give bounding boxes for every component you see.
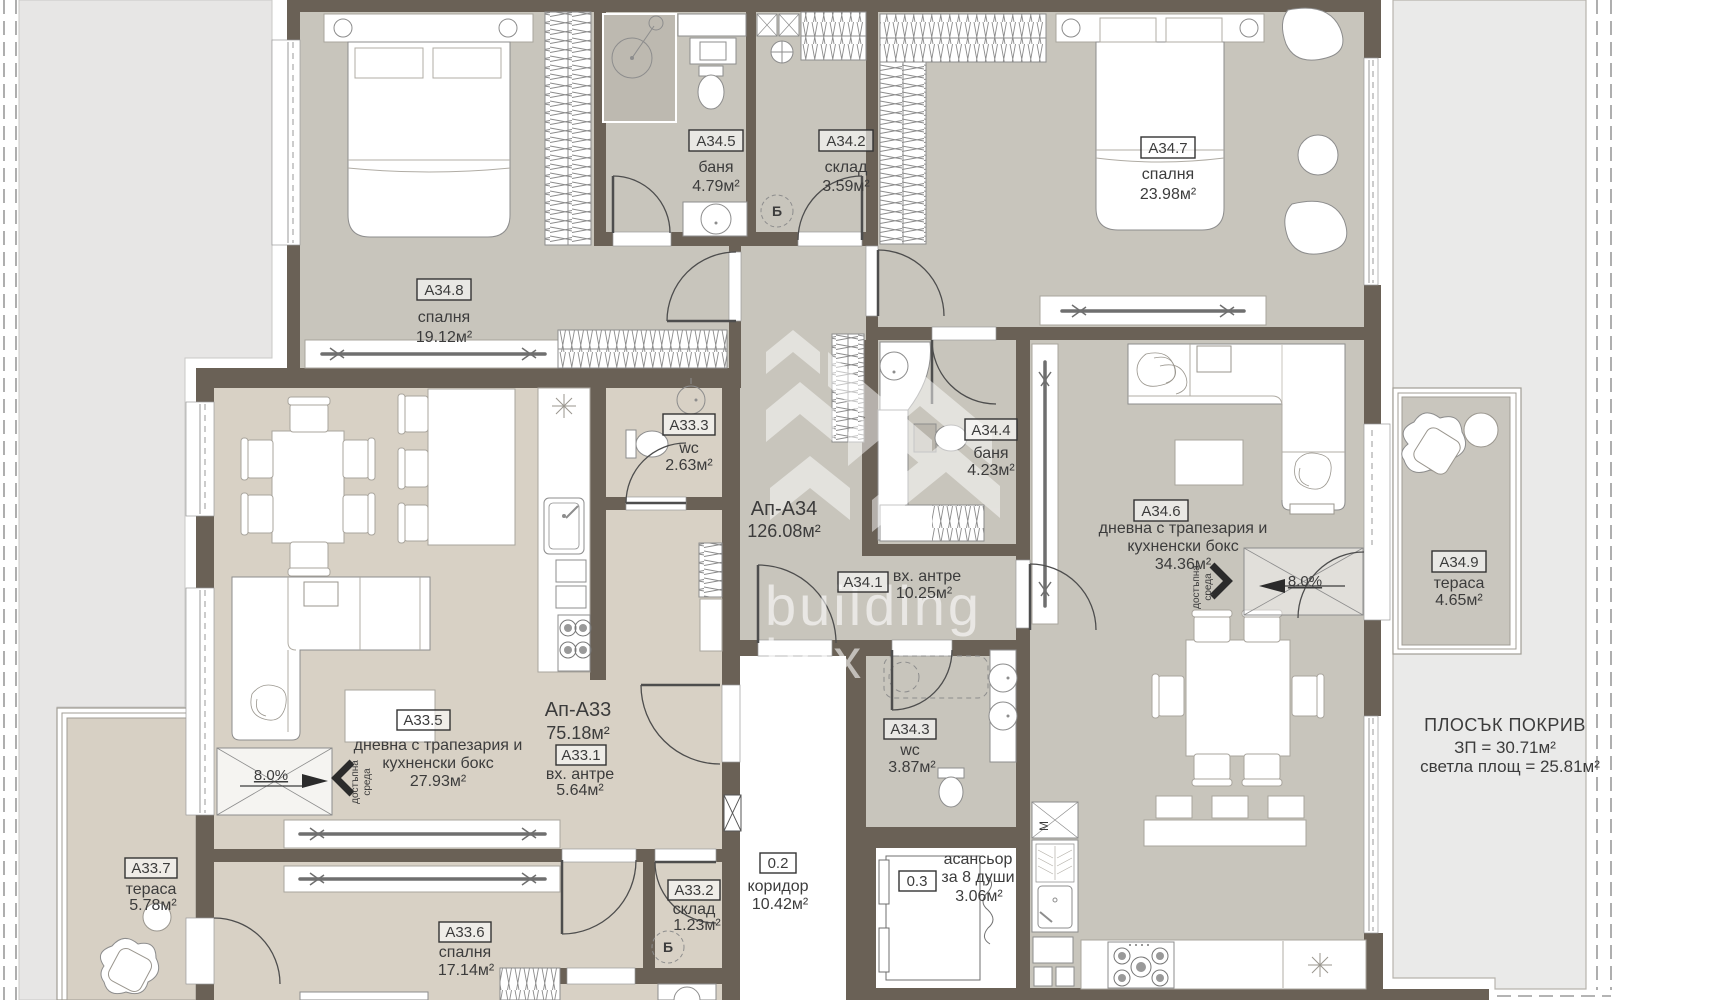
svg-text:A34.5: A34.5 bbox=[696, 133, 735, 150]
svg-text:4.23м²: 4.23м² bbox=[967, 462, 1015, 479]
svg-text:дневна с трапезария и: дневна с трапезария и bbox=[354, 737, 523, 754]
svg-text:ПЛОСЪК ПОКРИВ: ПЛОСЪК ПОКРИВ bbox=[1424, 715, 1586, 735]
svg-text:спалня: спалня bbox=[1142, 166, 1194, 183]
svg-text:3.06м²: 3.06м² bbox=[955, 888, 1003, 905]
svg-text:box: box bbox=[765, 627, 864, 690]
svg-text:Ап-А34: Ап-А34 bbox=[751, 498, 817, 520]
svg-text:склад: склад bbox=[825, 159, 868, 176]
svg-text:1.23м²: 1.23м² bbox=[673, 917, 721, 934]
svg-text:баня: баня bbox=[973, 445, 1008, 462]
svg-text:126.08м²: 126.08м² bbox=[747, 521, 820, 541]
svg-text:Б: Б bbox=[772, 203, 782, 219]
svg-text:асансьор: асансьор bbox=[944, 851, 1013, 868]
svg-text:дневна с трапезария и: дневна с трапезария и bbox=[1099, 520, 1268, 537]
svg-text:8.0%: 8.0% bbox=[1288, 573, 1322, 590]
svg-text:A33.2: A33.2 bbox=[674, 882, 713, 899]
svg-text:5.64м²: 5.64м² bbox=[556, 782, 604, 799]
svg-text:вх. антре: вх. антре bbox=[546, 766, 614, 783]
svg-text:A34.9: A34.9 bbox=[1439, 554, 1478, 571]
svg-text:27.93м²: 27.93м² bbox=[410, 773, 467, 790]
svg-text:за 8 души: за 8 души bbox=[941, 869, 1014, 886]
svg-text:A33.3: A33.3 bbox=[669, 417, 708, 434]
svg-text:A34.2: A34.2 bbox=[826, 133, 865, 150]
svg-text:10.25м²: 10.25м² bbox=[896, 585, 953, 602]
svg-text:баня: баня bbox=[698, 159, 733, 176]
svg-text:тераса: тераса bbox=[126, 881, 177, 898]
svg-text:спалня: спалня bbox=[439, 944, 491, 961]
svg-text:3.59м²: 3.59м² bbox=[822, 178, 870, 195]
svg-text:34.36м²: 34.36м² bbox=[1155, 556, 1212, 573]
svg-text:5.78м²: 5.78м² bbox=[129, 897, 177, 914]
svg-text:23.98м²: 23.98м² bbox=[1140, 186, 1197, 203]
svg-text:A34.8: A34.8 bbox=[424, 282, 463, 299]
svg-text:вх. антре: вх. антре bbox=[893, 568, 961, 585]
svg-text:A33.1: A33.1 bbox=[561, 747, 600, 764]
svg-text:10.42м²: 10.42м² bbox=[752, 896, 809, 913]
svg-text:A34.7: A34.7 bbox=[1148, 140, 1187, 157]
svg-text:A33.7: A33.7 bbox=[131, 860, 170, 877]
svg-text:A34.1: A34.1 bbox=[843, 574, 882, 591]
svg-text:4.65м²: 4.65м² bbox=[1435, 592, 1483, 609]
svg-text:Ап-А33: Ап-А33 bbox=[545, 699, 611, 721]
svg-text:достъпна: достъпна bbox=[1191, 565, 1202, 609]
svg-text:среда: среда bbox=[362, 768, 373, 796]
svg-text:2.63м²: 2.63м² bbox=[665, 457, 713, 474]
svg-text:среда: среда bbox=[1203, 573, 1214, 601]
svg-text:тераса: тераса bbox=[1434, 575, 1485, 592]
svg-text:Б: Б bbox=[663, 939, 673, 955]
svg-text:19.12м²: 19.12м² bbox=[416, 329, 473, 346]
svg-text:кухненски бокс: кухненски бокс bbox=[382, 755, 493, 772]
svg-text:коридор: коридор bbox=[747, 878, 808, 895]
svg-text:8.0%: 8.0% bbox=[254, 767, 288, 784]
svg-text:ЗП = 30.71м²: ЗП = 30.71м² bbox=[1454, 738, 1556, 757]
svg-text:кухненски бокс: кухненски бокс bbox=[1127, 538, 1238, 555]
svg-text:17.14м²: 17.14м² bbox=[438, 962, 495, 979]
svg-text:A34.4: A34.4 bbox=[971, 422, 1010, 439]
svg-text:M: M bbox=[1037, 821, 1051, 831]
svg-text:3.87м²: 3.87м² bbox=[888, 759, 936, 776]
svg-text:A33.5: A33.5 bbox=[403, 712, 442, 729]
svg-text:A33.6: A33.6 bbox=[445, 924, 484, 941]
svg-text:wc: wc bbox=[678, 440, 699, 457]
svg-text:4.79м²: 4.79м² bbox=[692, 178, 740, 195]
svg-text:75.18м²: 75.18м² bbox=[546, 723, 609, 743]
svg-text:достъпна: достъпна bbox=[350, 760, 361, 804]
svg-text:0.3: 0.3 bbox=[907, 873, 928, 890]
svg-text:спалня: спалня bbox=[418, 309, 470, 326]
svg-text:светла площ = 25.81м²: светла площ = 25.81м² bbox=[1420, 757, 1600, 776]
svg-text:склад: склад bbox=[673, 901, 716, 918]
svg-text:A34.6: A34.6 bbox=[1141, 503, 1180, 520]
svg-text:wc: wc bbox=[899, 742, 920, 759]
svg-text:A34.3: A34.3 bbox=[890, 721, 929, 738]
svg-text:0.2: 0.2 bbox=[768, 855, 789, 872]
